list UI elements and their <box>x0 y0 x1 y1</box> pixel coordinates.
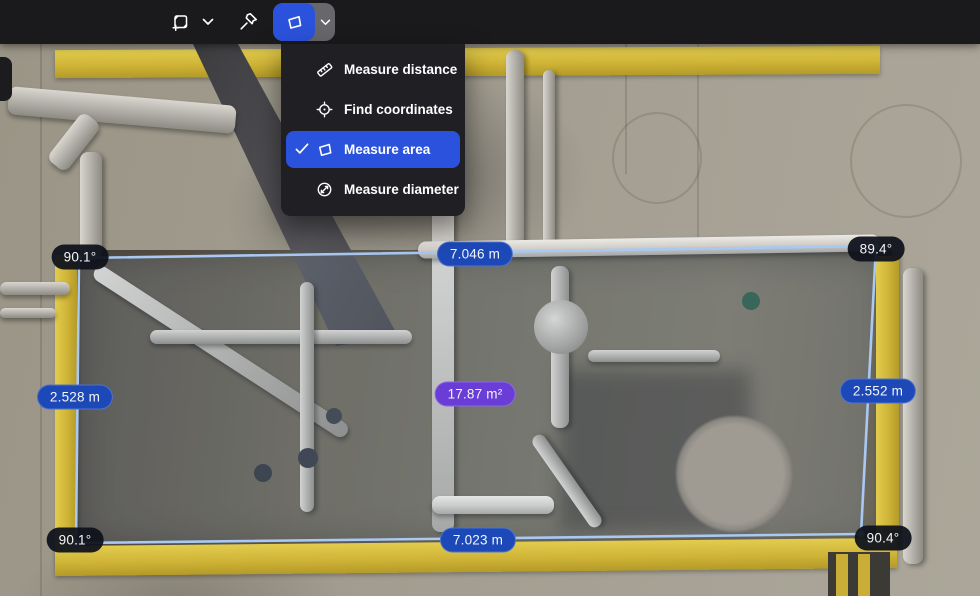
menu-item-measure-diameter[interactable]: Measure diameter <box>281 169 465 209</box>
ruler-icon <box>315 60 335 79</box>
angle-label-top-left: 90.1° <box>52 245 109 270</box>
distance-label-bottom: 7.023 m <box>440 528 516 553</box>
area-label: 17.87 m² <box>435 382 516 407</box>
menu-item-label: Find coordinates <box>344 102 453 117</box>
angle-label-bottom-right: 90.4° <box>855 526 912 551</box>
menu-item-measure-distance[interactable]: Measure distance <box>281 49 465 89</box>
pin-tool-button[interactable] <box>228 2 268 42</box>
map-viewport[interactable]: 90.1° 7.046 m 89.4° 2.528 m 17.87 m² 2.5… <box>0 0 980 596</box>
pin-icon <box>237 11 259 33</box>
polygon-icon <box>284 12 304 32</box>
crosshair-icon <box>315 100 335 119</box>
angle-label-bottom-left: 90.1° <box>47 528 104 553</box>
polygon-icon <box>315 140 335 159</box>
chevron-down-icon <box>320 19 331 26</box>
distance-label-left: 2.528 m <box>37 385 113 410</box>
menu-item-label: Measure diameter <box>344 182 459 197</box>
measure-tool-expand-button[interactable] <box>315 3 335 41</box>
chevron-down-icon <box>202 18 214 26</box>
measure-area-tool-button[interactable] <box>273 3 315 41</box>
menu-item-label: Measure distance <box>344 62 457 77</box>
distance-label-right: 2.552 m <box>840 379 916 404</box>
measure-area-overlay[interactable] <box>0 0 980 596</box>
crop-box-tool-button[interactable] <box>160 2 200 42</box>
angle-label-top-right: 89.4° <box>848 237 905 262</box>
checkmark-icon <box>295 143 315 155</box>
menu-item-label: Measure area <box>344 142 430 157</box>
menu-item-find-coordinates[interactable]: Find coordinates <box>281 89 465 129</box>
cube-plus-icon <box>169 11 191 33</box>
measure-tool-split-button <box>273 3 335 41</box>
distance-label-top: 7.046 m <box>437 242 513 267</box>
menu-item-measure-area[interactable]: Measure area <box>286 131 460 168</box>
crop-box-expand-button[interactable] <box>196 10 220 34</box>
toolbar <box>0 0 980 44</box>
measure-tools-menu: Measure distance Find coordinates <box>281 44 465 216</box>
diameter-icon <box>315 180 335 199</box>
